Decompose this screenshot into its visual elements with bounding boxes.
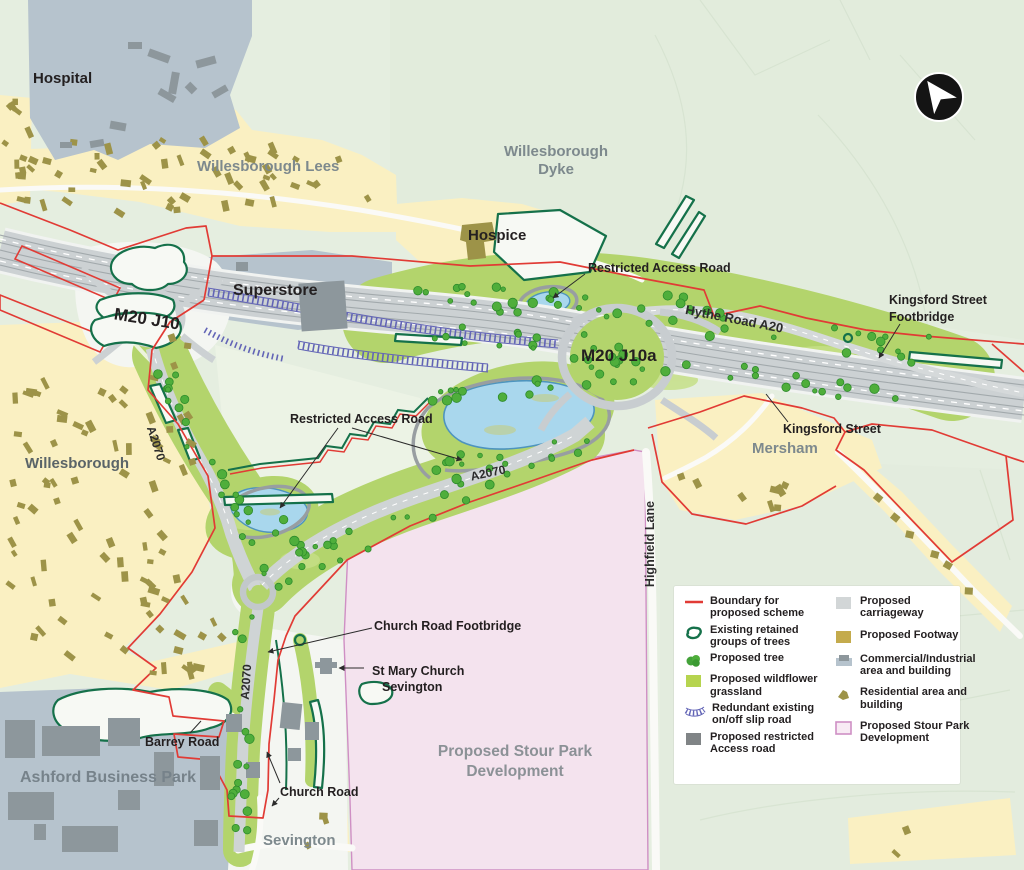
tree [279,515,287,523]
tree [346,528,353,535]
label-restricted-access-road-north: Restricted Access Road [588,261,731,275]
tree [831,325,837,331]
tree [868,332,876,340]
tree [240,790,249,799]
retained-trees-swatch-icon [684,625,704,641]
label-m20-j10a: M20 J10a [581,346,657,365]
tree [497,343,502,348]
building [319,813,328,820]
tree [154,370,163,379]
tree [549,456,555,462]
label-superstore: Superstore [233,282,318,299]
tree [337,558,342,563]
label-ashford-business-park: Ashford Business Park [20,769,196,786]
tree [752,366,758,372]
building [161,662,167,674]
tree [185,444,190,449]
tree [245,734,255,744]
tree [448,388,453,393]
tree [604,314,609,319]
tree [582,381,591,390]
tree [432,466,441,475]
tree [290,536,300,546]
tree [438,389,443,394]
tree [705,331,714,340]
tree [526,391,533,398]
label-willesborough: Willesborough [25,455,129,472]
tree [231,503,239,511]
tree [319,563,325,569]
tree [220,480,229,489]
building [5,720,35,758]
wildflower-swatch-icon [684,674,704,688]
tree [813,389,817,393]
label-willesborough-dyke-1: Willesborough [504,143,608,160]
scheme-map: { "map_title": "M20 J10a scheme plan", "… [0,0,1024,870]
building [184,342,192,349]
tree [209,459,215,465]
stour-park-swatch-icon [834,721,854,735]
tree [219,492,225,498]
tree [842,349,851,358]
label-church-road-footbridge: Church Road Footbridge [374,619,521,633]
footway-swatch-icon [834,630,854,644]
building [147,559,154,564]
building [12,392,18,403]
building [236,262,248,271]
tree [238,635,246,643]
tree [173,372,179,378]
tree [589,365,594,370]
building [68,187,75,192]
label-barrey-road: Barrey Road [145,735,219,749]
building [44,482,51,488]
tree [233,492,239,498]
tree [182,418,189,425]
tree [275,583,282,590]
label-stour-park-2: Development [466,763,563,780]
tree [552,440,556,444]
tree [465,292,470,297]
tree [926,334,931,339]
tree [228,793,235,800]
label-church-road: Church Road [280,785,358,799]
legend-panel: Boundary for proposed scheme Existing re… [674,586,960,784]
tree [459,462,463,466]
tree [548,385,553,390]
legend-item-carriageway: Proposed carriageway [834,595,976,620]
tree [752,373,758,379]
building [161,158,169,168]
legend-item-residential: Residential area and building [834,686,976,711]
tree [782,383,790,391]
building [288,748,301,761]
tree [870,384,880,394]
tree [457,451,465,459]
building [280,702,303,730]
tree [262,571,266,575]
tree [640,367,645,372]
label-sevington: Sevington [263,832,336,849]
building [200,756,220,790]
tree [448,298,453,303]
tree [819,388,826,395]
tree [452,474,462,484]
tree [232,824,239,831]
tree [442,396,451,405]
building [62,826,118,852]
tree [313,544,318,549]
tree [244,764,249,769]
building [194,820,218,846]
tree [646,320,652,326]
tree [492,283,501,292]
tree [596,370,604,378]
building [305,722,319,740]
building [149,670,157,675]
label-restricted-access-road-mid: Restricted Access Road [290,412,433,426]
label-highfield-lane: Highfield Lane [643,501,657,587]
tree [498,393,507,402]
building [8,792,54,820]
tree [454,387,459,392]
tree [239,534,245,540]
tree [443,333,450,340]
tree [459,324,465,330]
building [12,99,18,105]
tree [471,300,476,305]
building [41,560,47,572]
tree [234,511,239,516]
tree [728,375,733,380]
tree [246,520,251,525]
legend-item-restricted-road: Proposed restricted Access road [684,731,830,756]
tree [721,325,728,332]
building [226,714,242,732]
north-arrow [912,70,966,124]
tree [771,335,776,340]
tree [497,454,503,460]
label-kingsford-footbridge-2: Footbridge [889,310,954,324]
tree [897,353,904,360]
label-kingsford-footbridge-1: Kingsford Street [889,293,988,307]
tree [682,361,690,369]
tree [459,283,466,290]
legend-item-proposed-tree: Proposed tree [684,652,830,669]
tree [237,707,242,712]
building [187,662,192,669]
restricted-road-swatch-icon [684,732,704,746]
building [34,824,46,840]
commercial-swatch-icon [834,654,854,668]
label-hospice: Hospice [468,227,526,244]
tree [892,396,898,402]
tree [405,515,410,520]
tree [582,295,587,300]
tree [492,302,501,311]
tree [429,514,436,521]
tree [414,286,423,295]
redundant-slip-swatch-icon [684,703,706,717]
building [18,172,26,179]
building [173,206,180,213]
tree [596,307,601,312]
tree [613,309,622,318]
boundary-swatch-icon [684,596,704,608]
tree [440,491,448,499]
tree [233,629,239,635]
tree [234,760,242,768]
tree [508,298,517,307]
tree [844,384,852,392]
tree [391,515,396,520]
building [42,726,100,756]
tree [574,449,581,456]
tree [741,363,747,369]
legend-item-wildflower: Proposed wildflower grassland [684,673,830,698]
tree [462,497,469,504]
building [30,633,38,641]
legend-right-column: Proposed carriageway Proposed Footway Co… [834,595,976,778]
tree [676,299,685,308]
tree [793,372,800,379]
tree [181,395,189,403]
tree [299,563,305,569]
tree [501,287,506,292]
tree [485,480,494,489]
tree [217,470,226,479]
tree [272,530,278,536]
tree [175,404,183,412]
label-kingsford-street: Kingsford Street [783,422,882,436]
tree [428,396,437,405]
tree [478,453,483,458]
legend-item-stour-park: Proposed Stour Park Development [834,720,976,745]
tree [365,546,371,552]
building [118,790,140,810]
tree [243,807,252,816]
tree [458,387,466,395]
residential-swatch-icon [834,687,854,701]
tree [908,359,915,366]
building [60,142,72,148]
tree [663,291,672,300]
building [48,599,55,607]
tree [876,337,885,346]
building [14,431,22,437]
tree [533,334,541,342]
tree [285,578,292,585]
legend-item-redundant-slip: Redundant existing on/off slip road [684,702,830,727]
tree [581,332,587,338]
tree [250,615,255,620]
tree [584,439,589,444]
tree [249,540,255,546]
tree [529,463,535,469]
label-hospital: Hospital [33,70,92,87]
building [94,153,99,160]
tree [637,305,644,312]
tree [515,331,521,337]
building [126,443,132,455]
tree [514,308,522,316]
building [108,718,140,746]
tree [531,346,536,351]
label-willesborough-dyke-2: Dyke [538,161,574,178]
tree [669,316,678,325]
building [128,42,142,49]
building [121,571,128,582]
legend-item-commercial: Commercial/Industrial area and building [834,653,976,678]
tree [802,380,810,388]
building [166,426,173,433]
tree [528,298,538,308]
tree [462,341,467,346]
tree [856,331,861,336]
building [117,557,124,567]
tree [554,301,561,308]
carriageway-swatch-icon [834,596,854,610]
label-st-mary-2: Sevington [382,680,442,694]
legend-item-retained-trees: Existing retained groups of trees [684,624,830,649]
tree [165,387,170,392]
proposed-tree-swatch-icon [684,653,704,669]
tree [835,394,841,400]
tree [330,538,336,544]
tree [432,336,437,341]
building [120,179,131,187]
building [57,415,68,423]
label-a2070-south: A2070 [238,664,254,701]
tree [661,366,671,376]
tree [243,826,250,833]
label-st-mary-1: St Mary Church [372,664,464,678]
label-mersham: Mersham [752,440,818,457]
building [965,587,973,594]
tree [896,349,901,354]
tree [165,398,171,404]
tree [235,779,242,786]
tree [610,379,616,385]
tree [837,379,844,386]
tree [423,289,429,295]
legend-left-column: Boundary for proposed scheme Existing re… [684,595,830,778]
label-willesborough-lees: Willesborough Lees [197,158,339,175]
label-stour-park-1: Proposed Stour Park [438,743,593,760]
tree [295,549,302,556]
tree [535,381,540,386]
tree [576,305,581,310]
legend-item-boundary: Boundary for proposed scheme [684,595,830,620]
tree [570,354,578,362]
tree [244,506,253,515]
tree [445,457,454,466]
tree [630,379,636,385]
building [14,159,19,168]
legend-item-footway: Proposed Footway [834,629,976,644]
